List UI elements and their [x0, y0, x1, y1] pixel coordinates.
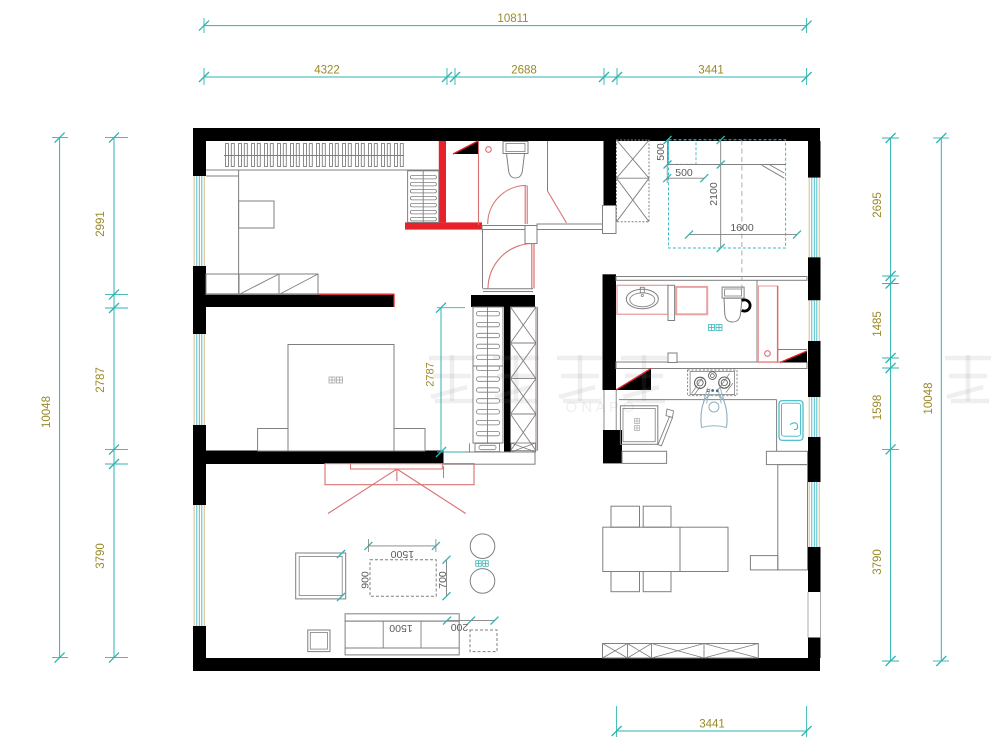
svg-text:4322: 4322 [314, 65, 340, 77]
svg-text:3441: 3441 [698, 65, 724, 77]
svg-text:3790: 3790 [95, 543, 107, 569]
svg-text:2688: 2688 [511, 65, 537, 77]
svg-text:700: 700 [437, 571, 449, 589]
svg-text:10048: 10048 [923, 383, 935, 415]
svg-text:10048: 10048 [41, 396, 53, 428]
svg-text:500: 500 [655, 143, 667, 161]
svg-text:1598: 1598 [872, 395, 884, 421]
svg-text:1600: 1600 [730, 222, 754, 234]
svg-text:1500: 1500 [391, 548, 415, 560]
svg-text:1500: 1500 [389, 622, 413, 634]
svg-text:1485: 1485 [872, 311, 884, 337]
svg-text:O N A P O: O N A P O [566, 399, 635, 416]
svg-text:2991: 2991 [95, 211, 107, 237]
svg-text:2100: 2100 [708, 182, 720, 206]
svg-text:3441: 3441 [699, 719, 725, 731]
svg-text:2695: 2695 [872, 192, 884, 218]
svg-text:500: 500 [675, 167, 693, 179]
svg-text:200: 200 [451, 621, 469, 633]
svg-text:2787: 2787 [95, 367, 107, 393]
svg-text:10811: 10811 [497, 13, 528, 25]
svg-text:3790: 3790 [872, 549, 884, 575]
